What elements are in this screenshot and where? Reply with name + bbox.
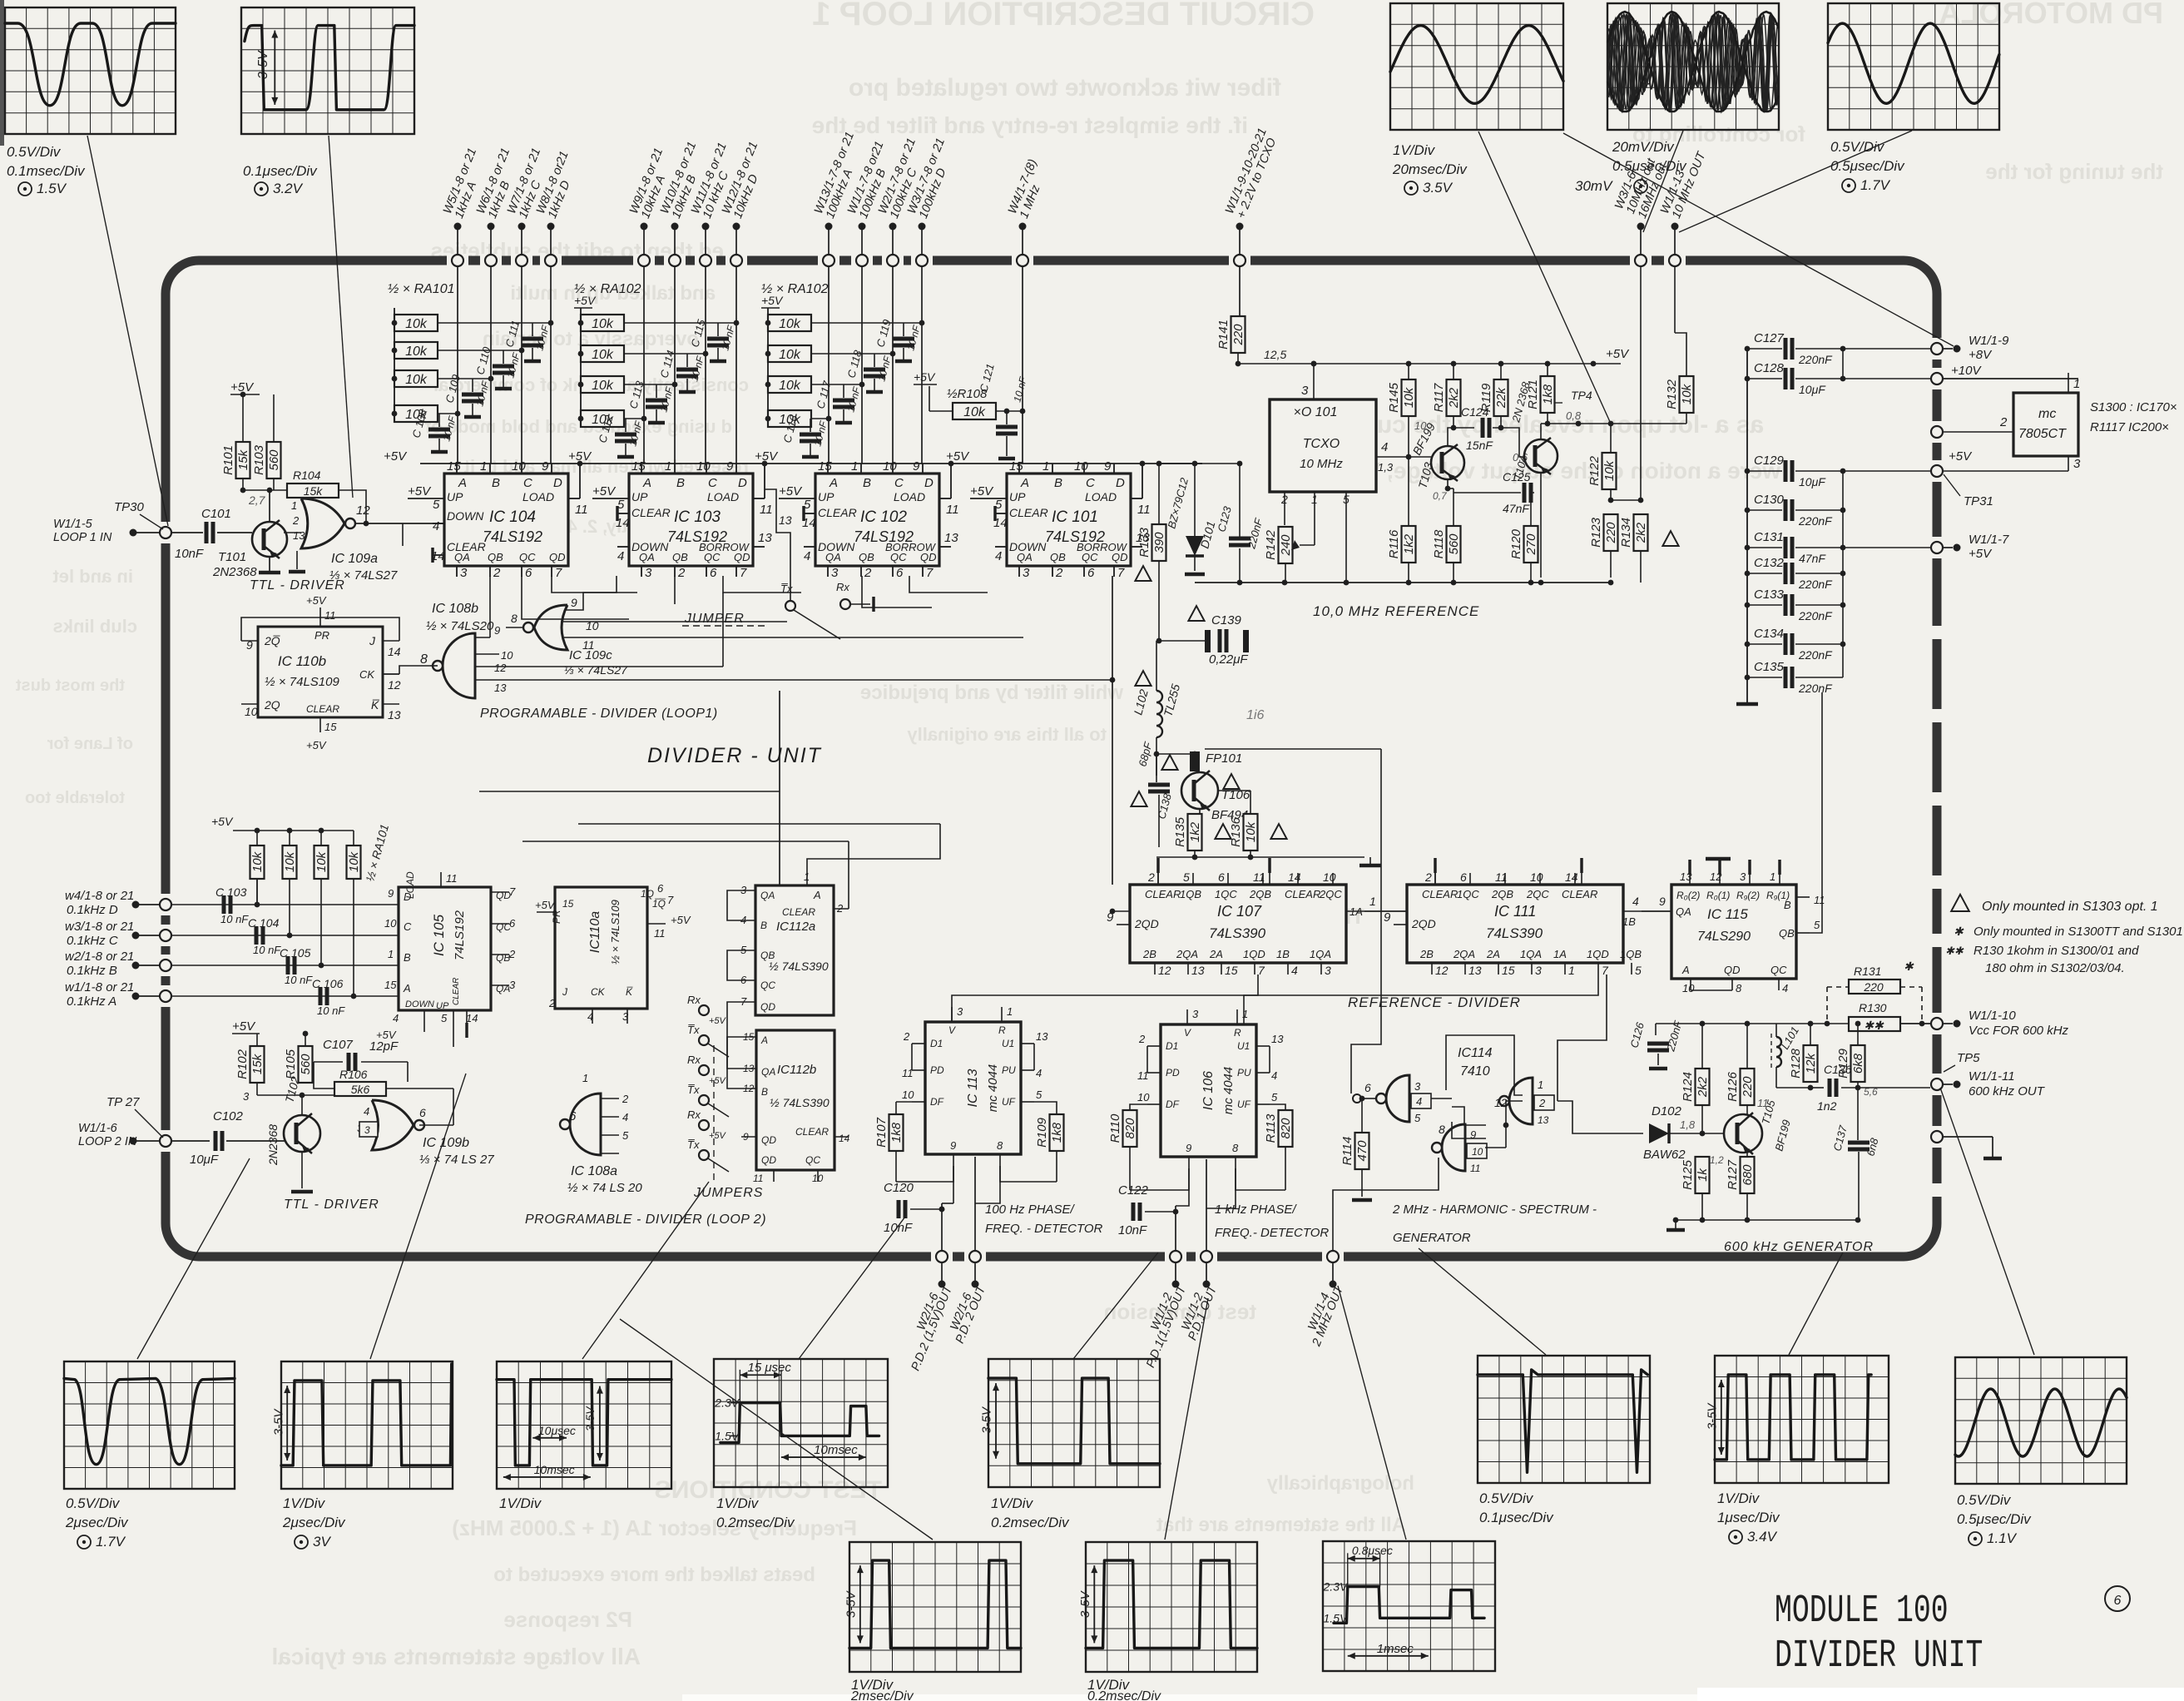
svg-text:3.5V: 3.5V [1423,180,1454,196]
svg-text:9: 9 [1104,459,1112,474]
svg-text:3-5V: 3-5V [844,1589,858,1618]
svg-text:1: 1 [388,948,394,960]
svg-text:2QC: 2QC [1526,888,1549,900]
svg-text:2QC: 2QC [1319,888,1342,900]
svg-text:A: A [403,982,411,994]
svg-text:1: 1 [1770,870,1775,883]
svg-text:PROGRAMABLE - DIVIDER (LOOP 2: PROGRAMABLE - DIVIDER (LOOP 2) [525,1213,766,1227]
svg-text:QC: QC [519,551,536,563]
svg-text:14: 14 [1288,870,1301,884]
svg-text:QA: QA [496,983,510,994]
svg-text:9: 9 [542,459,549,474]
svg-text:1V/Div: 1V/Div [1393,142,1436,158]
svg-text:R: R [1234,1027,1241,1039]
svg-text:1QB: 1QB [1180,888,1201,900]
svg-text:9: 9 [1384,910,1391,925]
svg-text:R113: R113 [1264,1113,1278,1143]
svg-text:15 μsec: 15 μsec [747,1361,791,1375]
svg-text:1: 1 [1538,1079,1543,1091]
svg-text:15: 15 [384,979,397,991]
svg-text:1n2: 1n2 [1817,1099,1837,1113]
svg-text:R109: R109 [1035,1117,1049,1148]
svg-text:11: 11 [446,872,458,885]
svg-text:T̅x: T̅x [687,1084,700,1096]
svg-text:W1/1-7: W1/1-7 [1969,533,2009,547]
svg-text:5: 5 [622,1129,629,1142]
svg-text:+5V: +5V [946,449,970,464]
svg-text:LOAD: LOAD [894,490,925,503]
svg-text:1: 1 [665,459,671,474]
svg-text:if. the simplest re-entry and: if. the simplest re-entry and filter be … [812,112,1248,138]
svg-text:QB: QB [488,551,503,563]
svg-text:11: 11 [575,503,588,517]
svg-text:10k: 10k [963,405,986,419]
svg-text:w2/1-8 or 21: w2/1-8 or 21 [65,950,134,964]
svg-text:All the statements are that: All the statements are that [1156,1514,1406,1536]
svg-text:QB: QB [1779,927,1795,940]
svg-text:8: 8 [1736,982,1742,994]
svg-text:FREQ.- DETECTOR: FREQ.- DETECTOR [1215,1226,1329,1240]
svg-text:2B: 2B [1419,948,1434,960]
svg-text:B: B [676,476,685,490]
svg-text:3: 3 [243,1090,250,1103]
svg-text:1QD: 1QD [1243,948,1265,960]
svg-text:QC: QC [1082,551,1098,563]
svg-text:IC 101: IC 101 [1052,508,1098,526]
svg-text:7410: 7410 [1460,1064,1490,1079]
svg-text:220: 220 [1604,522,1618,544]
svg-text:PROGRAMABLE - DIVIDER (LOOP1): PROGRAMABLE - DIVIDER (LOOP1) [480,707,718,721]
svg-text:R101: R101 [221,445,235,475]
svg-text:7: 7 [926,566,934,580]
svg-text:6: 6 [1460,870,1467,884]
svg-text:IC 111: IC 111 [1494,903,1536,920]
svg-text:1k: 1k [1696,1168,1710,1182]
svg-text:11: 11 [1137,503,1151,517]
svg-text:+5V: +5V [779,484,803,498]
svg-text:8: 8 [511,612,518,625]
svg-text:9: 9 [950,1139,956,1152]
svg-text:1,3: 1,3 [1378,461,1394,474]
svg-text:IC 103: IC 103 [674,508,721,526]
svg-text:9: 9 [913,459,920,474]
svg-text:QA: QA [454,551,470,563]
svg-text:11: 11 [1495,870,1508,884]
svg-text:R141: R141 [1216,320,1231,350]
svg-text:4: 4 [1271,1069,1277,1082]
svg-text:½ × 74 LS 20: ½ × 74 LS 20 [567,1181,642,1195]
svg-text:2A: 2A [1486,948,1500,960]
svg-text:12,5: 12,5 [1264,348,1286,361]
svg-text:PR: PR [314,629,329,642]
svg-text:IC 107: IC 107 [1217,903,1262,920]
svg-text:C120: C120 [884,1181,914,1195]
svg-text:R₀(1): R₀(1) [1706,890,1730,901]
svg-text:the most dust: the most dust [16,677,125,695]
svg-text:R106: R106 [339,1068,368,1081]
svg-text:+5V: +5V [709,1076,727,1086]
svg-text:13: 13 [494,682,507,694]
svg-text:8: 8 [1232,1142,1239,1154]
svg-text:1μsec/Div: 1μsec/Div [1717,1510,1780,1525]
svg-text:R142: R142 [1264,529,1278,560]
svg-text:3-5V: 3-5V [1078,1589,1092,1618]
svg-text:C139: C139 [1211,613,1242,627]
svg-text:½ 74LS390: ½ 74LS390 [770,1096,830,1109]
svg-text:FREQ. - DETECTOR: FREQ. - DETECTOR [985,1222,1103,1236]
svg-text:2k2: 2k2 [1696,1076,1710,1098]
svg-text:UF: UF [1237,1098,1251,1110]
svg-text:PU: PU [1237,1067,1251,1079]
svg-text:15k: 15k [250,1053,265,1074]
svg-text:11: 11 [1757,1097,1769,1109]
svg-text:1k2: 1k2 [1402,533,1416,554]
svg-text:C135: C135 [1754,660,1785,674]
svg-text:9: 9 [571,596,577,609]
svg-text:2: 2 [1999,415,2008,429]
svg-text:74LS390: 74LS390 [1209,925,1266,941]
svg-text:LOAD: LOAD [522,490,554,503]
svg-text:6: 6 [1218,870,1225,884]
svg-text:UP: UP [631,490,648,503]
svg-text:LOOP 1 IN: LOOP 1 IN [53,531,112,544]
svg-text:REFERENCE - DIVIDER: REFERENCE - DIVIDER [1348,994,1521,1010]
svg-text:560: 560 [267,449,281,471]
svg-text:R125: R125 [1681,1159,1695,1190]
svg-text:mc 4044: mc 4044 [1221,1067,1236,1115]
svg-text:+5V: +5V [535,899,556,911]
svg-text:7: 7 [1117,566,1125,580]
svg-text:CLEAR: CLEAR [1009,506,1048,519]
svg-text:R₀(2): R₀(2) [1676,890,1700,901]
svg-text:+5V: +5V [970,484,994,498]
svg-text:1QB: 1QB [1620,948,1642,960]
svg-text:R₉(2): R₉(2) [1736,890,1760,901]
svg-text:CK: CK [591,986,606,998]
svg-text:+5V: +5V [568,449,592,464]
svg-text:R117: R117 [1432,383,1446,412]
svg-text:0.1kHz B: 0.1kHz B [67,964,117,978]
svg-text:10: 10 [1682,982,1695,994]
svg-text:R105: R105 [284,1049,298,1079]
svg-text:LOAD: LOAD [404,871,416,899]
svg-text:2μsec/Div: 2μsec/Div [65,1515,129,1530]
svg-text:TP4: TP4 [1571,389,1592,402]
svg-text:½ × RA101: ½ × RA101 [388,282,455,296]
svg-text:4: 4 [804,549,810,563]
svg-text:13: 13 [1538,1114,1549,1126]
svg-text:820: 820 [1123,1118,1137,1139]
svg-text:Rx: Rx [687,1108,701,1121]
svg-text:TTL - DRIVER: TTL - DRIVER [250,578,345,593]
svg-text:4: 4 [433,519,439,533]
svg-text:T̅x: T̅x [687,1138,700,1151]
svg-text:R134: R134 [1619,518,1633,548]
svg-text:mc: mc [2038,407,2056,421]
svg-text:C: C [1086,476,1095,490]
svg-text:GENERATOR: GENERATOR [1393,1231,1471,1245]
svg-text:W1/1-11: W1/1-11 [1969,1069,2015,1084]
svg-text:30mV: 30mV [1575,178,1613,194]
svg-text:1.5V: 1.5V [37,181,67,196]
svg-text:10k: 10k [314,850,329,872]
svg-text:9: 9 [1659,895,1666,908]
svg-text:QC: QC [805,1154,820,1166]
svg-text:+5V: +5V [232,1019,256,1034]
svg-text:+5V: +5V [1969,547,1993,561]
svg-text:+5V: +5V [574,294,597,307]
svg-text:C 103: C 103 [215,885,247,899]
svg-text:1,2: 1,2 [1710,1154,1724,1166]
svg-text:1B: 1B [1276,948,1290,960]
svg-text:+5V: +5V [1606,347,1630,361]
svg-text:IC 110b: IC 110b [278,653,326,669]
svg-text:1k8: 1k8 [1541,384,1555,404]
svg-text:1.5V: 1.5V [1324,1611,1349,1624]
svg-text:4: 4 [1416,1095,1422,1108]
svg-text:13: 13 [944,531,958,545]
svg-text:+10V: +10V [1951,364,1982,378]
svg-text:8: 8 [420,652,428,667]
svg-text:1.7V: 1.7V [96,1534,126,1550]
svg-text:1Q: 1Q [641,888,654,900]
svg-text:w3/1-8 or 21: w3/1-8 or 21 [65,920,134,934]
svg-text:beats talked the more executed: beats talked the more executed to [493,1564,815,1586]
svg-text:11: 11 [1470,1163,1480,1174]
svg-text:2: 2 [1538,1097,1546,1109]
svg-text:R116: R116 [1387,529,1401,558]
svg-text:C: C [708,476,717,490]
svg-text:PD MOTOROLA: PD MOTOROLA [1939,0,2163,30]
svg-text:DIVIDER - UNIT: DIVIDER - UNIT [647,744,822,767]
svg-text:220nF: 220nF [1798,609,1833,622]
svg-text:UP: UP [436,1001,449,1011]
svg-text:+5V: +5V [211,815,234,828]
svg-text:10k: 10k [592,379,614,393]
svg-text:R1117 IC200×: R1117 IC200× [2090,420,2169,434]
svg-text:1B: 1B [1622,915,1636,928]
svg-text:13: 13 [293,529,305,542]
svg-text:10k: 10k [283,850,297,872]
svg-text:9: 9 [388,887,394,900]
svg-text:K̅: K̅ [626,986,633,998]
svg-text:2QB: 2QB [1249,888,1271,900]
svg-text:1V/Div: 1V/Div [716,1495,760,1511]
svg-text:2,7: 2,7 [248,493,266,507]
svg-text:in and let: in and let [52,566,133,587]
svg-text:DOWN: DOWN [447,509,484,523]
svg-text:2QD: 2QD [1411,917,1436,930]
svg-text:10: 10 [1323,870,1336,884]
svg-text:10: 10 [1074,459,1088,474]
svg-text:74LS192: 74LS192 [453,910,467,960]
svg-text:74LS192: 74LS192 [483,528,542,545]
svg-text:IC 102: IC 102 [860,508,907,526]
svg-text:+5V: +5V [592,484,617,498]
svg-text:14: 14 [839,1133,850,1144]
svg-text:IC 108b: IC 108b [432,602,478,616]
svg-text:1: 1 [1042,459,1049,474]
svg-text:TP 27: TP 27 [106,1095,140,1109]
svg-text:10nF: 10nF [175,547,204,561]
svg-text:8: 8 [1439,1123,1445,1136]
svg-text:+5V: +5V [306,594,327,607]
svg-text:T̅x: T̅x [687,1024,700,1036]
svg-text:R102: R102 [235,1049,250,1079]
svg-text:K̅: K̅ [371,698,380,712]
svg-text:74LS290: 74LS290 [1697,930,1751,944]
svg-text:C: C [404,920,412,933]
svg-text:C107: C107 [323,1038,354,1052]
svg-text:2 MHz - HARMONIC - SPECTRUM -: 2 MHz - HARMONIC - SPECTRUM - [1392,1203,1597,1217]
svg-text:TTL - DRIVER: TTL - DRIVER [284,1198,379,1212]
svg-text:IC 109c: IC 109c [569,648,612,662]
svg-text:10k: 10k [779,317,801,331]
svg-text:D1: D1 [930,1038,943,1049]
svg-text:U1: U1 [1237,1040,1250,1052]
svg-text:0,8: 0,8 [1566,409,1582,422]
svg-text:C133: C133 [1754,588,1785,602]
svg-text:2QA: 2QA [1453,948,1475,960]
svg-text:13: 13 [388,708,401,722]
svg-text:UP: UP [1009,490,1026,503]
svg-text:3: 3 [1414,1080,1421,1093]
svg-text:1V/Div: 1V/Div [283,1495,326,1511]
svg-text:2k2: 2k2 [1634,522,1648,543]
svg-text:5k6: 5k6 [351,1083,370,1096]
svg-text:R118: R118 [1432,529,1446,558]
svg-text:MODULE 100: MODULE 100 [1775,1589,1949,1633]
svg-text:IC 106: IC 106 [1201,1071,1216,1110]
svg-text:IC 109b: IC 109b [423,1136,469,1150]
svg-text:3: 3 [364,1124,370,1136]
svg-text:R104: R104 [293,469,321,482]
svg-text:10k: 10k [592,348,614,362]
svg-text:10: 10 [1414,419,1427,432]
svg-text:10: 10 [586,619,599,632]
svg-text:FP101: FP101 [1206,751,1242,766]
svg-text:QD: QD [920,551,937,563]
svg-text:0.5V/Div: 0.5V/Div [7,144,62,160]
svg-text:4: 4 [1782,982,1788,994]
svg-text:1.7V: 1.7V [1860,177,1891,193]
svg-text:tolerable too: tolerable too [25,789,125,807]
svg-text:PD: PD [930,1064,944,1076]
svg-text:4: 4 [1632,895,1639,908]
svg-text:2: 2 [903,1030,910,1043]
svg-text:½ × 74LS20: ½ × 74LS20 [426,619,494,633]
svg-text:2: 2 [292,514,300,527]
svg-text:47nF: 47nF [1503,502,1530,515]
svg-text:PU: PU [1002,1064,1016,1076]
svg-text:CLEAR: CLEAR [1422,888,1458,900]
svg-text:1V/Div: 1V/Div [991,1495,1034,1511]
svg-text:CLEAR: CLEAR [631,506,671,519]
svg-text:240: 240 [1279,534,1293,557]
svg-text:2: 2 [1055,566,1063,580]
svg-text:15: 15 [562,898,574,910]
svg-text:13: 13 [1271,1033,1284,1045]
svg-text:½ 74LS390: ½ 74LS390 [769,960,829,973]
svg-text:220: 220 [1863,980,1884,994]
svg-text:15: 15 [818,459,832,474]
svg-text:6: 6 [569,1109,577,1123]
svg-text:6: 6 [419,1106,426,1119]
svg-text:Frequency selector 1A (1 + 2: Frequency selector 1A (1 + 2.0005 MHz) [452,1515,857,1540]
svg-text:2QA: 2QA [1176,948,1198,960]
svg-text:0.5V/Div: 0.5V/Div [1957,1492,2012,1508]
svg-text:IC112b: IC112b [777,1063,816,1077]
svg-text:10nF: 10nF [1118,1223,1147,1237]
svg-text:JUMPER: JUMPER [684,612,745,626]
svg-text:3: 3 [1535,964,1542,977]
svg-text:R131: R131 [1854,965,1881,978]
svg-text:1: 1 [851,459,858,474]
svg-text:2: 2 [493,566,501,580]
svg-text:CLEAR: CLEAR [1562,888,1597,900]
svg-text:11: 11 [760,503,773,517]
svg-text:R130: R130 [1859,1001,1887,1014]
svg-text:B: B [761,1086,768,1098]
svg-text:CLEAR: CLEAR [818,506,857,519]
svg-text:3: 3 [2073,457,2081,471]
svg-text:A: A [642,476,651,490]
svg-text:5: 5 [1183,870,1190,884]
svg-text:10 MHz: 10 MHz [1300,457,1343,471]
svg-text:+5V: +5V [306,739,327,751]
svg-text:10μF: 10μF [190,1153,219,1167]
svg-text:TCXO: TCXO [1303,437,1340,451]
svg-text:0.2msec/Div: 0.2msec/Div [716,1515,795,1530]
svg-text:10: 10 [512,459,526,474]
svg-text:C102: C102 [213,1109,244,1123]
svg-text:220nF: 220nF [1798,353,1833,366]
svg-text:C: C [523,476,532,490]
svg-text:+5V: +5V [709,1016,727,1026]
svg-text:0.1kHz A: 0.1kHz A [67,994,116,1009]
svg-text:R136: R136 [1229,816,1243,847]
svg-text:1: 1 [582,1072,588,1084]
svg-text:+5V: +5V [914,370,936,384]
svg-text:1k2: 1k2 [1188,821,1202,842]
svg-text:UF: UF [1002,1096,1016,1108]
svg-text:R132: R132 [1665,379,1679,409]
svg-text:DOWN: DOWN [405,999,434,1009]
svg-text:J: J [369,634,376,647]
svg-text:P2 response: P2 response [503,1607,632,1632]
svg-text:2.3V: 2.3V [1323,1580,1349,1594]
svg-text:5: 5 [1635,964,1642,977]
svg-text:0.5V/Div: 0.5V/Div [1830,139,1885,155]
svg-text:R103: R103 [252,444,266,475]
svg-text:2QD: 2QD [1134,917,1159,930]
svg-text:10: 10 [883,459,897,474]
svg-text:1QC: 1QC [1457,888,1479,900]
svg-text:5: 5 [1036,1089,1042,1101]
svg-text:1: 1 [291,499,297,512]
svg-text:10msec: 10msec [534,1463,575,1476]
svg-text:13: 13 [758,531,772,545]
svg-text:of Lane for: of Lane for [47,735,133,753]
svg-text:1V/Div: 1V/Div [1717,1490,1761,1506]
svg-text:R122: R122 [1587,455,1602,486]
svg-text:Only mounted in S1300TT and S1: Only mounted in S1300TT and S1301 [1974,925,2183,939]
svg-text:10 nF: 10 nF [220,913,249,925]
svg-text:QA: QA [760,890,775,901]
svg-text:R110: R110 [1108,1113,1122,1143]
svg-text:CLEAR: CLEAR [452,978,461,1005]
svg-text:IC 113: IC 113 [966,1069,980,1107]
